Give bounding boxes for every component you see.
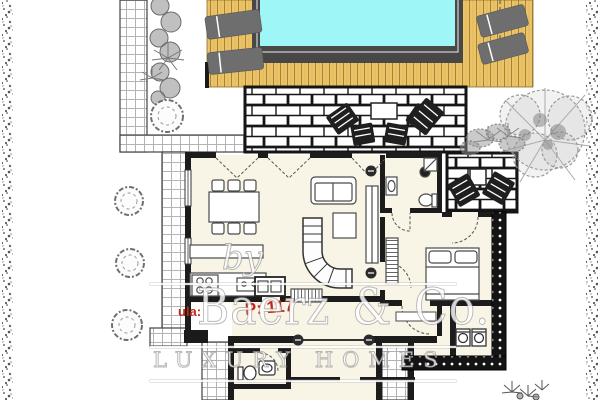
radiator-icon [291, 289, 322, 302]
floor-plan-canvas: ula: P: 117 by Baerz & Co. LUXURY HOMES [0, 0, 600, 400]
hall-closet [396, 312, 436, 321]
wc-toilet-icon [244, 366, 256, 380]
swimming-pool [252, 0, 463, 63]
media-sideboard [366, 186, 378, 263]
property-boundary-right [586, 0, 598, 400]
watermark-rule-top [150, 283, 456, 285]
watermark-rule-bottom [150, 380, 456, 382]
insulated-wall-right [492, 212, 506, 370]
wardrobe-icon [386, 238, 398, 284]
grass-tufts-icon [502, 380, 549, 400]
toilet-icon [419, 194, 433, 206]
plan-annotation-fragment: ula: [178, 304, 201, 319]
sofa [311, 177, 356, 204]
coffee-table [333, 213, 356, 238]
insulated-wall-bottom [402, 356, 506, 370]
property-boundary-left [2, 0, 13, 400]
watermark-rule-middle [150, 346, 456, 348]
plan-area-annotation: P: 117 [244, 296, 295, 320]
dining-set [209, 180, 259, 234]
floor-plan-drawing [0, 0, 600, 400]
